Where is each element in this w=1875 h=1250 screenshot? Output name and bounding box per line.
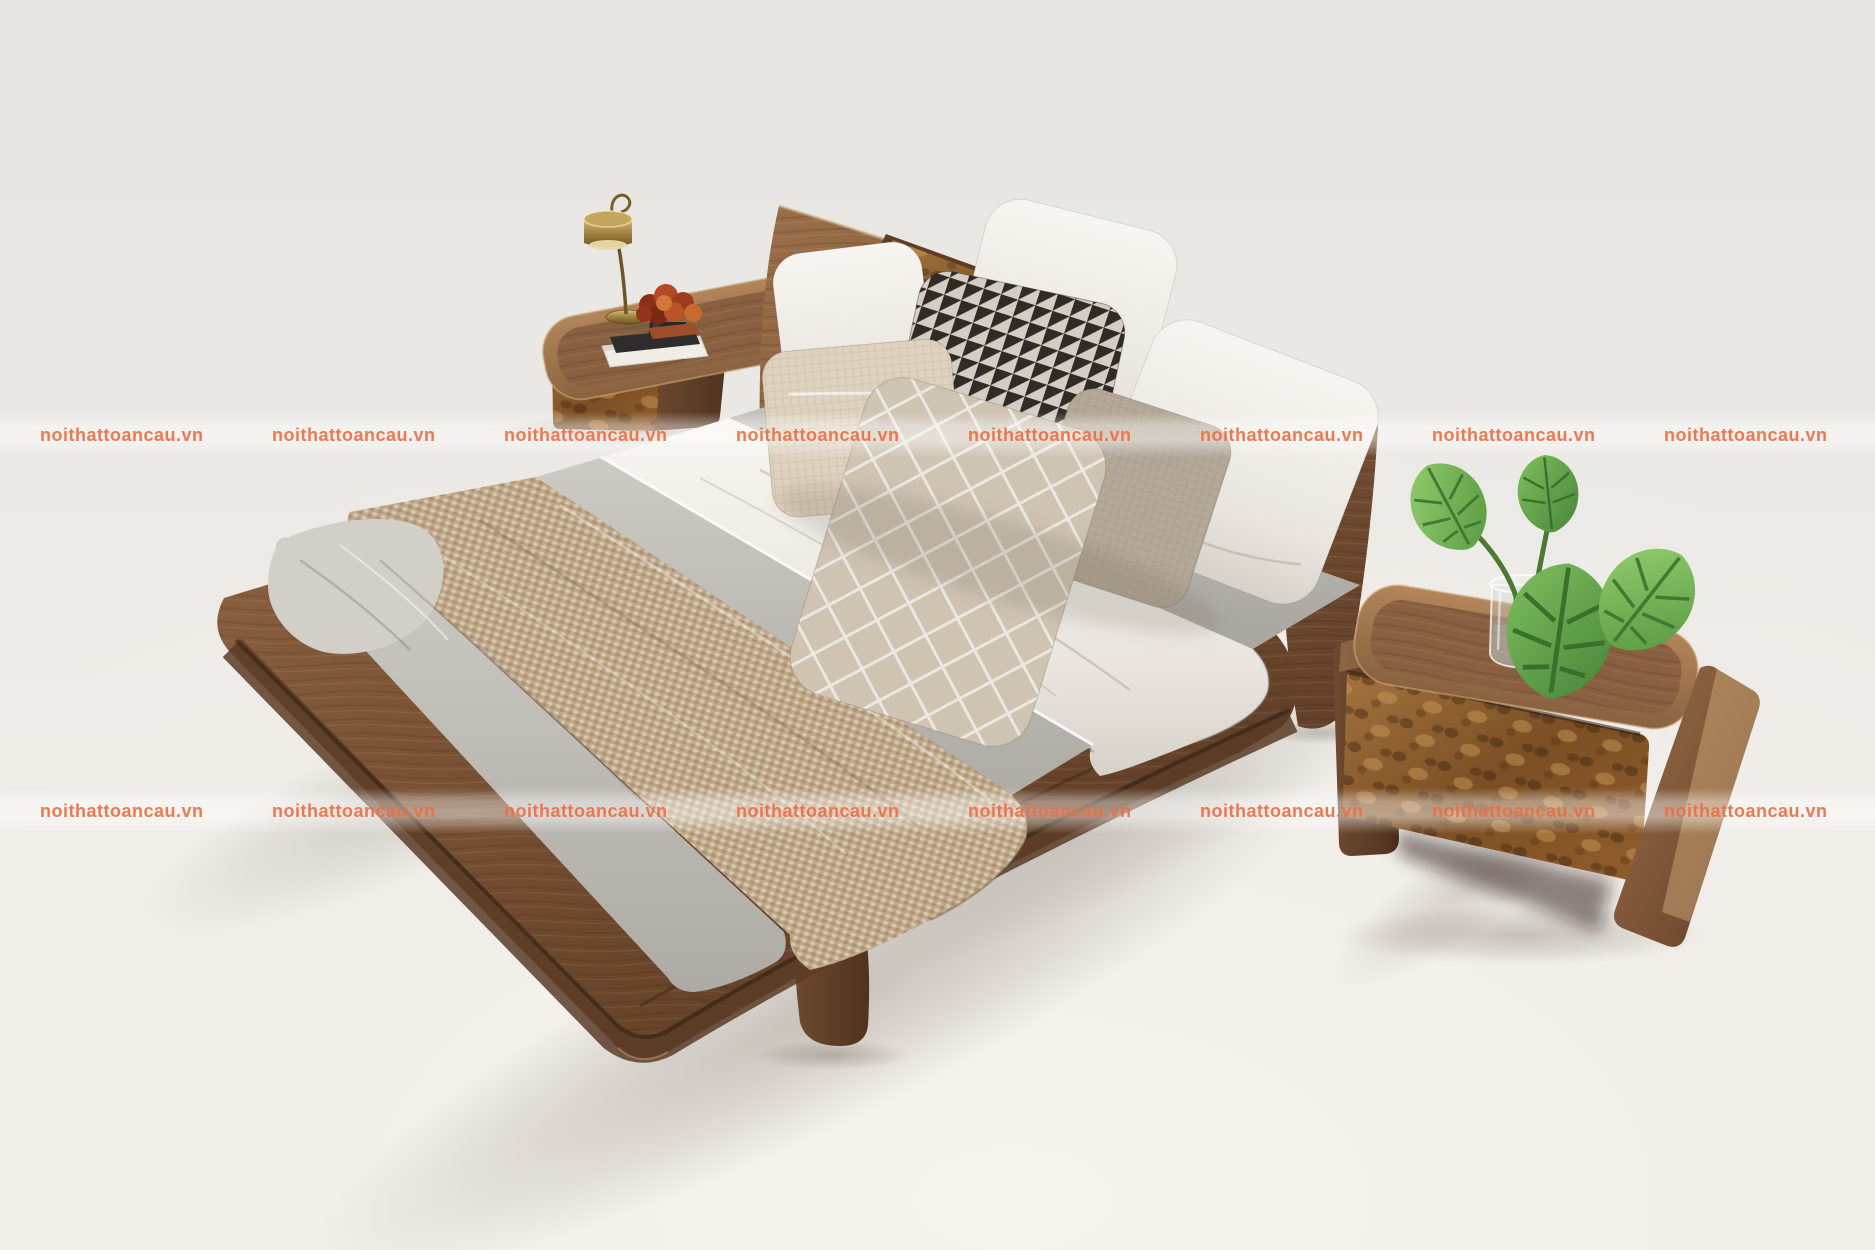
monstera-leaf (1514, 452, 1582, 536)
lamp-shade (584, 211, 632, 250)
bedroom-product-photo: noithattoancau.vnnoithattoancau.vnnoitha… (0, 0, 1875, 1250)
red-flowers (636, 284, 702, 325)
right-nightstand (1307, 449, 1760, 1020)
lamp-arm (612, 195, 630, 212)
bedroom-scene (0, 0, 1875, 1250)
